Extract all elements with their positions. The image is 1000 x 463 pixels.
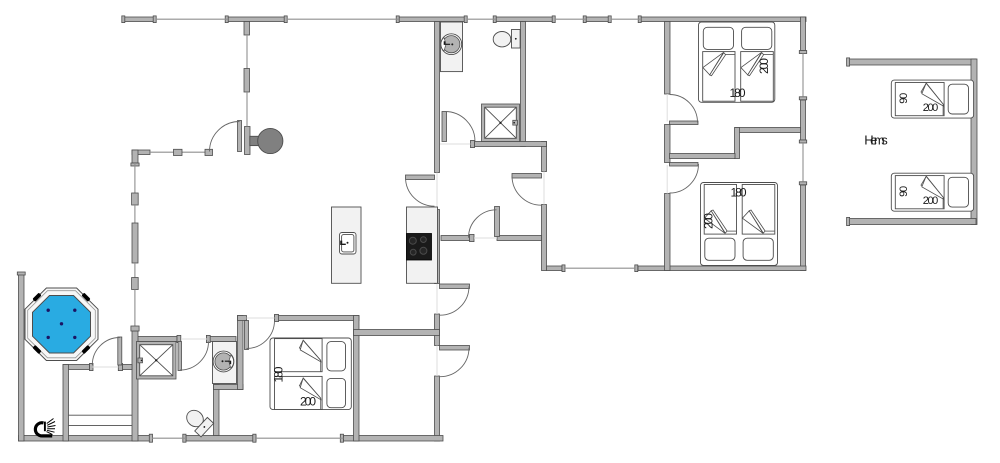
svg-text:90: 90 (898, 186, 910, 197)
svg-text:180: 180 (272, 366, 286, 382)
svg-text:180: 180 (731, 186, 747, 200)
svg-text:180: 180 (730, 86, 746, 100)
svg-text:200: 200 (300, 395, 316, 409)
svg-text:200: 200 (923, 102, 939, 114)
svg-text:Hems: Hems (864, 133, 888, 148)
svg-text:200: 200 (923, 195, 939, 207)
svg-text:200: 200 (757, 58, 771, 74)
svg-text:200: 200 (701, 213, 715, 229)
svg-text:90: 90 (898, 93, 910, 104)
